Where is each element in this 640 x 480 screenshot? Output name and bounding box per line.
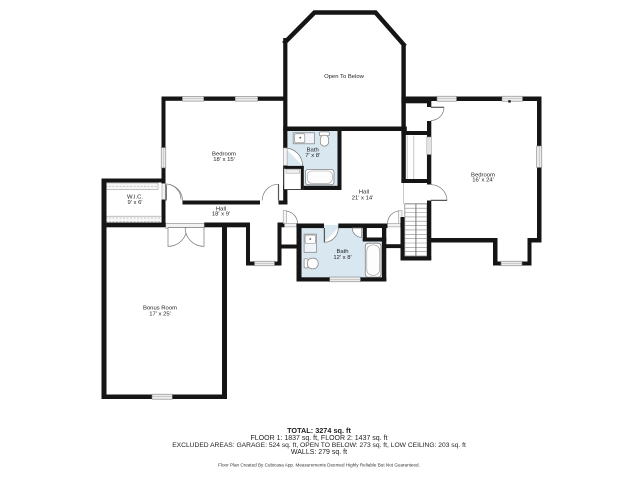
svg-text:Open To Below: Open To Below bbox=[324, 74, 365, 80]
svg-text:18′ x 15′: 18′ x 15′ bbox=[213, 157, 235, 163]
svg-text:17′ x 25′: 17′ x 25′ bbox=[149, 312, 171, 318]
svg-text:FLOOR 1: 1837 sq. ft, FLOOR 2:: FLOOR 1: 1837 sq. ft, FLOOR 2: 1437 sq. … bbox=[251, 435, 388, 442]
svg-text:12′ x 8′: 12′ x 8′ bbox=[333, 255, 351, 261]
svg-text:21′ x 14′: 21′ x 14′ bbox=[352, 196, 374, 202]
svg-text:Bonus Room: Bonus Room bbox=[143, 305, 177, 311]
svg-text:Floor Plan Created By Cubicasa: Floor Plan Created By Cubicasa App. Meas… bbox=[218, 463, 420, 468]
svg-text:WALLS: 279 sq. ft: WALLS: 279 sq. ft bbox=[291, 449, 347, 456]
svg-text:16′ x 24′: 16′ x 24′ bbox=[472, 178, 494, 184]
svg-text:9′ x 6′: 9′ x 6′ bbox=[128, 200, 143, 206]
svg-text:EXCLUDED AREAS: GARAGE: 524 sq: EXCLUDED AREAS: GARAGE: 524 sq. ft, OPEN… bbox=[172, 442, 466, 449]
svg-text:TOTAL: 3274 sq. ft: TOTAL: 3274 sq. ft bbox=[287, 426, 351, 435]
svg-text:18′ x 9′: 18′ x 9′ bbox=[212, 212, 230, 218]
svg-text:7′ x 8′: 7′ x 8′ bbox=[305, 153, 320, 159]
svg-text:Hall: Hall bbox=[359, 190, 369, 196]
